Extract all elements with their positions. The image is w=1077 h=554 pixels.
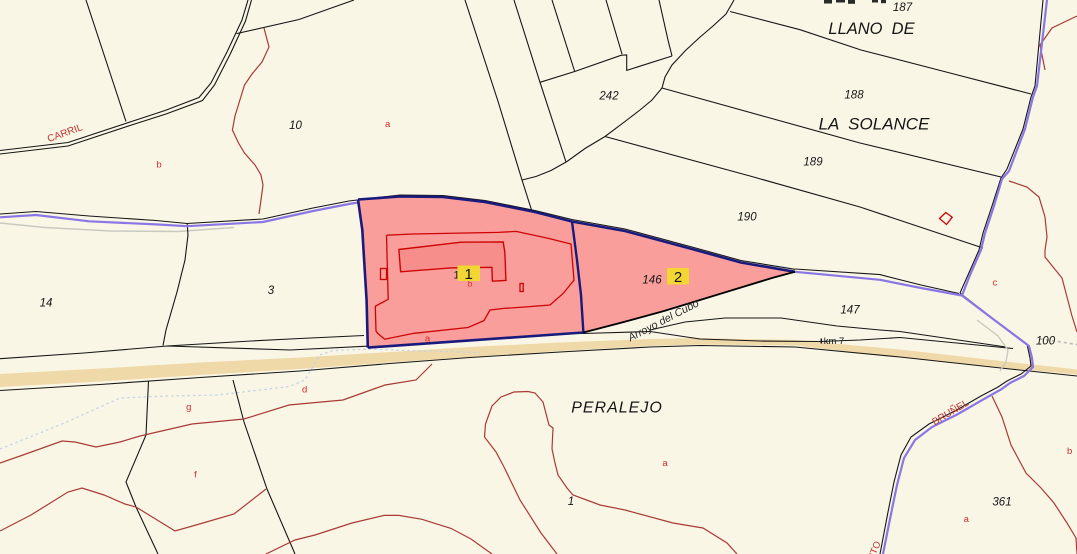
svg-text:189: 189: [803, 157, 823, 169]
svg-text:LLANO DE: LLANO DE: [828, 20, 915, 38]
svg-text:147: 147: [840, 305, 860, 317]
svg-text:146: 146: [642, 275, 662, 287]
svg-text:PERALEJO: PERALEJO: [571, 400, 663, 417]
svg-text:km 7: km 7: [824, 336, 845, 347]
svg-text:100: 100: [1036, 336, 1056, 348]
svg-text:1: 1: [465, 266, 473, 283]
svg-text:b: b: [1067, 446, 1072, 457]
svg-text:10: 10: [289, 120, 302, 132]
svg-text:242: 242: [598, 91, 619, 103]
svg-text:g: g: [186, 402, 191, 413]
svg-text:b: b: [156, 160, 161, 171]
svg-text:14: 14: [40, 298, 53, 310]
svg-text:f: f: [194, 470, 197, 481]
svg-text:a: a: [385, 119, 391, 130]
svg-text:a: a: [425, 334, 431, 345]
svg-text:361: 361: [992, 497, 1011, 509]
svg-text:LA SOLANCE: LA SOLANCE: [819, 115, 931, 134]
svg-text:188: 188: [844, 90, 864, 102]
svg-text:2: 2: [674, 269, 682, 286]
svg-text:a: a: [964, 514, 970, 525]
svg-text:c: c: [993, 278, 998, 289]
svg-text:a: a: [662, 458, 668, 469]
svg-text:187: 187: [893, 2, 913, 14]
svg-text:d: d: [302, 385, 307, 396]
svg-text:3: 3: [268, 285, 275, 297]
svg-text:190: 190: [737, 212, 757, 224]
svg-text:1: 1: [568, 496, 574, 508]
